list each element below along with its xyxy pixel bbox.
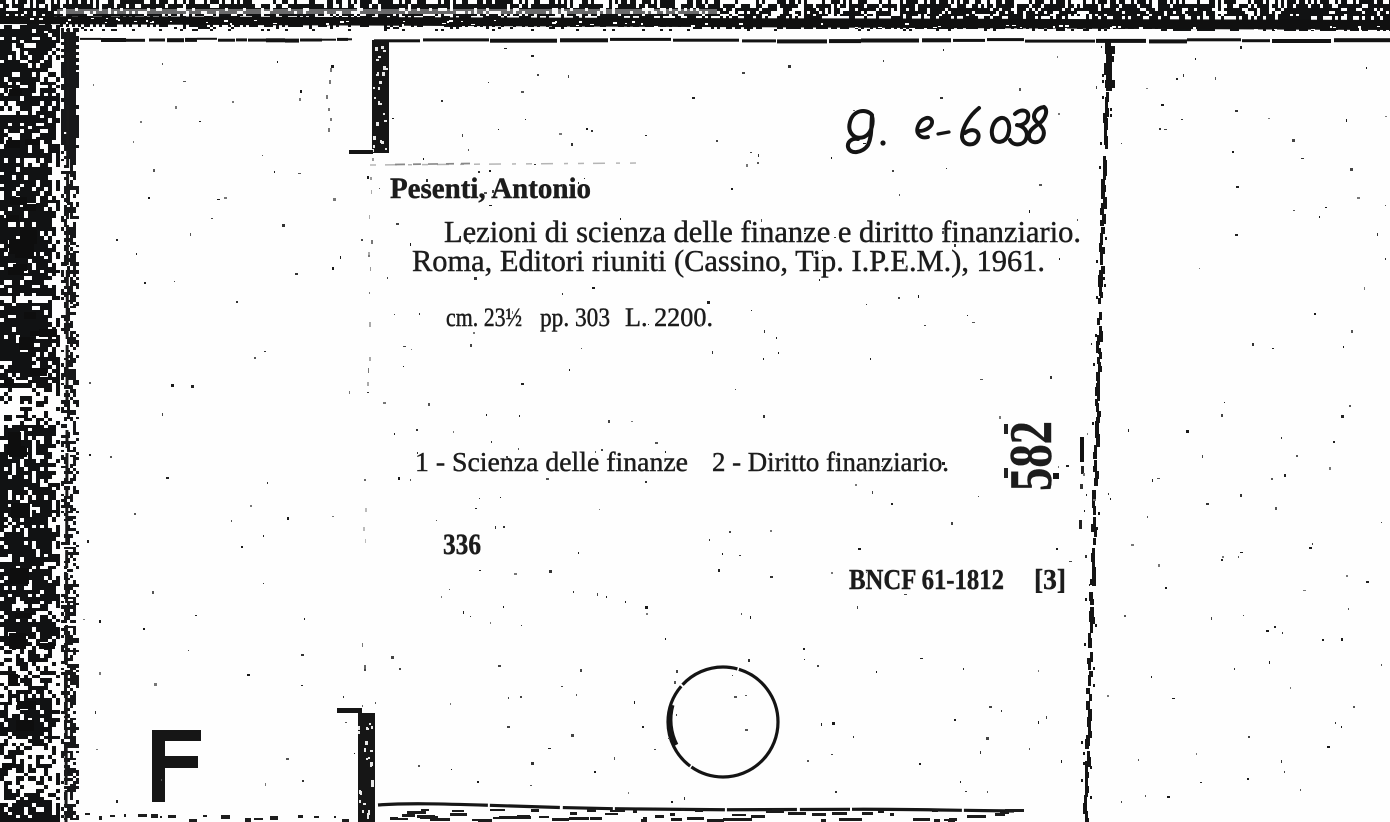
svg-text:pp. 303: pp. 303	[540, 303, 610, 332]
svg-text:336: 336	[443, 528, 481, 561]
svg-text:[3]: [3]	[1034, 564, 1066, 596]
svg-text:L. 2200.: L. 2200.	[625, 303, 713, 332]
svg-text:1 - Scienza delle finanze: 1 - Scienza delle finanze	[415, 447, 688, 477]
svg-text:Roma, Editori riuniti (Cassino: Roma, Editori riuniti (Cassino, Tip. I.P…	[412, 243, 1045, 278]
svg-text:2 - Diritto finanziario.: 2 - Diritto finanziario.	[712, 447, 949, 477]
svg-text:cm. 23½: cm. 23½	[446, 303, 522, 332]
svg-text:Pesenti, Antonio: Pesenti, Antonio	[390, 172, 591, 205]
svg-text:BNCF 61-1812: BNCF 61-1812	[849, 564, 1004, 596]
